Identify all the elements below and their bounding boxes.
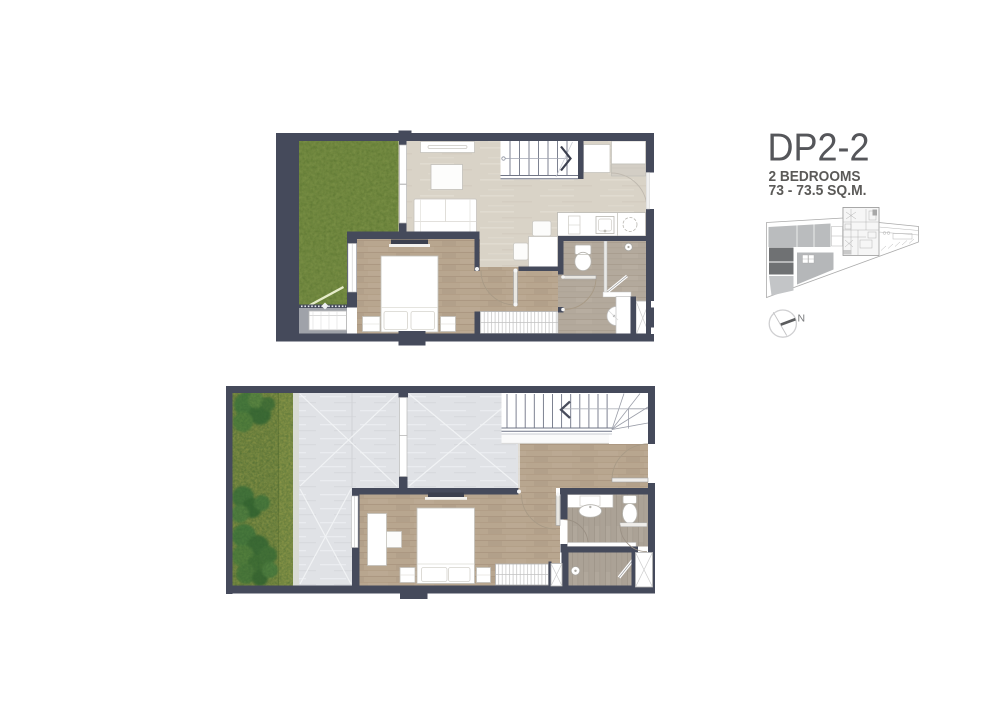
svg-text:N: N bbox=[798, 313, 806, 325]
svg-text:73 - 73.5 SQ.M.: 73 - 73.5 SQ.M. bbox=[769, 182, 867, 199]
svg-text:DP2-2: DP2-2 bbox=[768, 127, 870, 170]
